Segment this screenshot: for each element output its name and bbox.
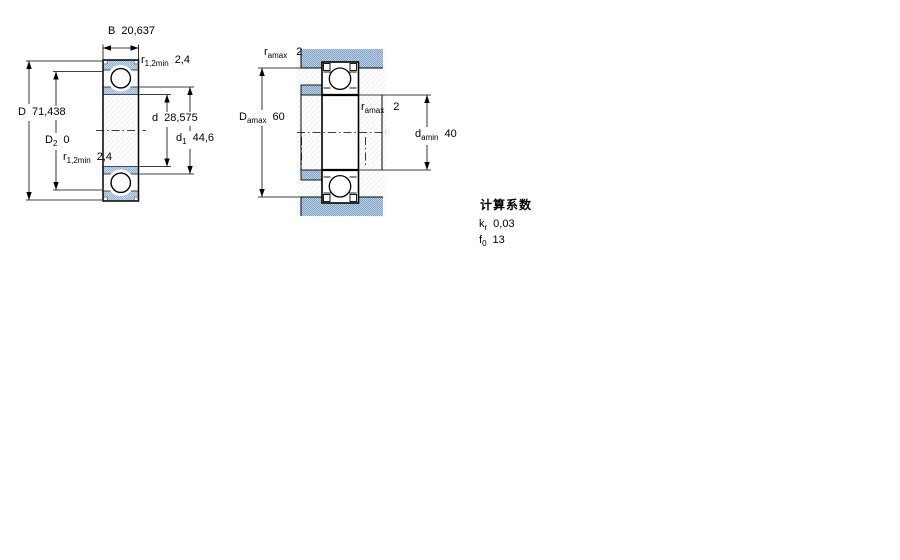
dim-label-r12-top: r1,2min2,4 bbox=[141, 54, 190, 68]
dim-label-ra-top: ramax2 bbox=[264, 46, 302, 60]
mounting-dimensions-view bbox=[258, 48, 431, 217]
bearing-dimensions-figure: B20,637 r1,2min2,4 D71,438 D20 r1,2min2,… bbox=[0, 0, 900, 560]
dim-label-D: D71,438 bbox=[16, 106, 68, 120]
bearing-drawing bbox=[0, 0, 900, 560]
dimension-Da-max bbox=[258, 68, 301, 197]
dim-label-d1: d144,6 bbox=[174, 132, 216, 146]
dim-label-r12-bottom: r1,2min2,4 bbox=[63, 151, 112, 165]
calc-factor-f0: f013 bbox=[479, 234, 505, 248]
calculation-factors-title: 计算系数 bbox=[480, 196, 532, 213]
dimension-B bbox=[103, 45, 139, 60]
dim-label-D2: D20 bbox=[43, 134, 72, 148]
ball-top bbox=[111, 69, 130, 88]
dimension-D2 bbox=[53, 72, 102, 191]
dim-label-B: B20,637 bbox=[108, 25, 155, 39]
dim-label-ra-mid: ramax2 bbox=[361, 101, 399, 115]
dimension-D bbox=[26, 61, 102, 200]
calc-factor-kr: kr0,03 bbox=[479, 218, 515, 232]
dim-label-da-min: damin40 bbox=[413, 128, 459, 142]
ball-bottom bbox=[111, 173, 130, 192]
dim-label-Da-max: Damax60 bbox=[237, 111, 287, 125]
dim-label-d: d28,575 bbox=[150, 112, 200, 126]
